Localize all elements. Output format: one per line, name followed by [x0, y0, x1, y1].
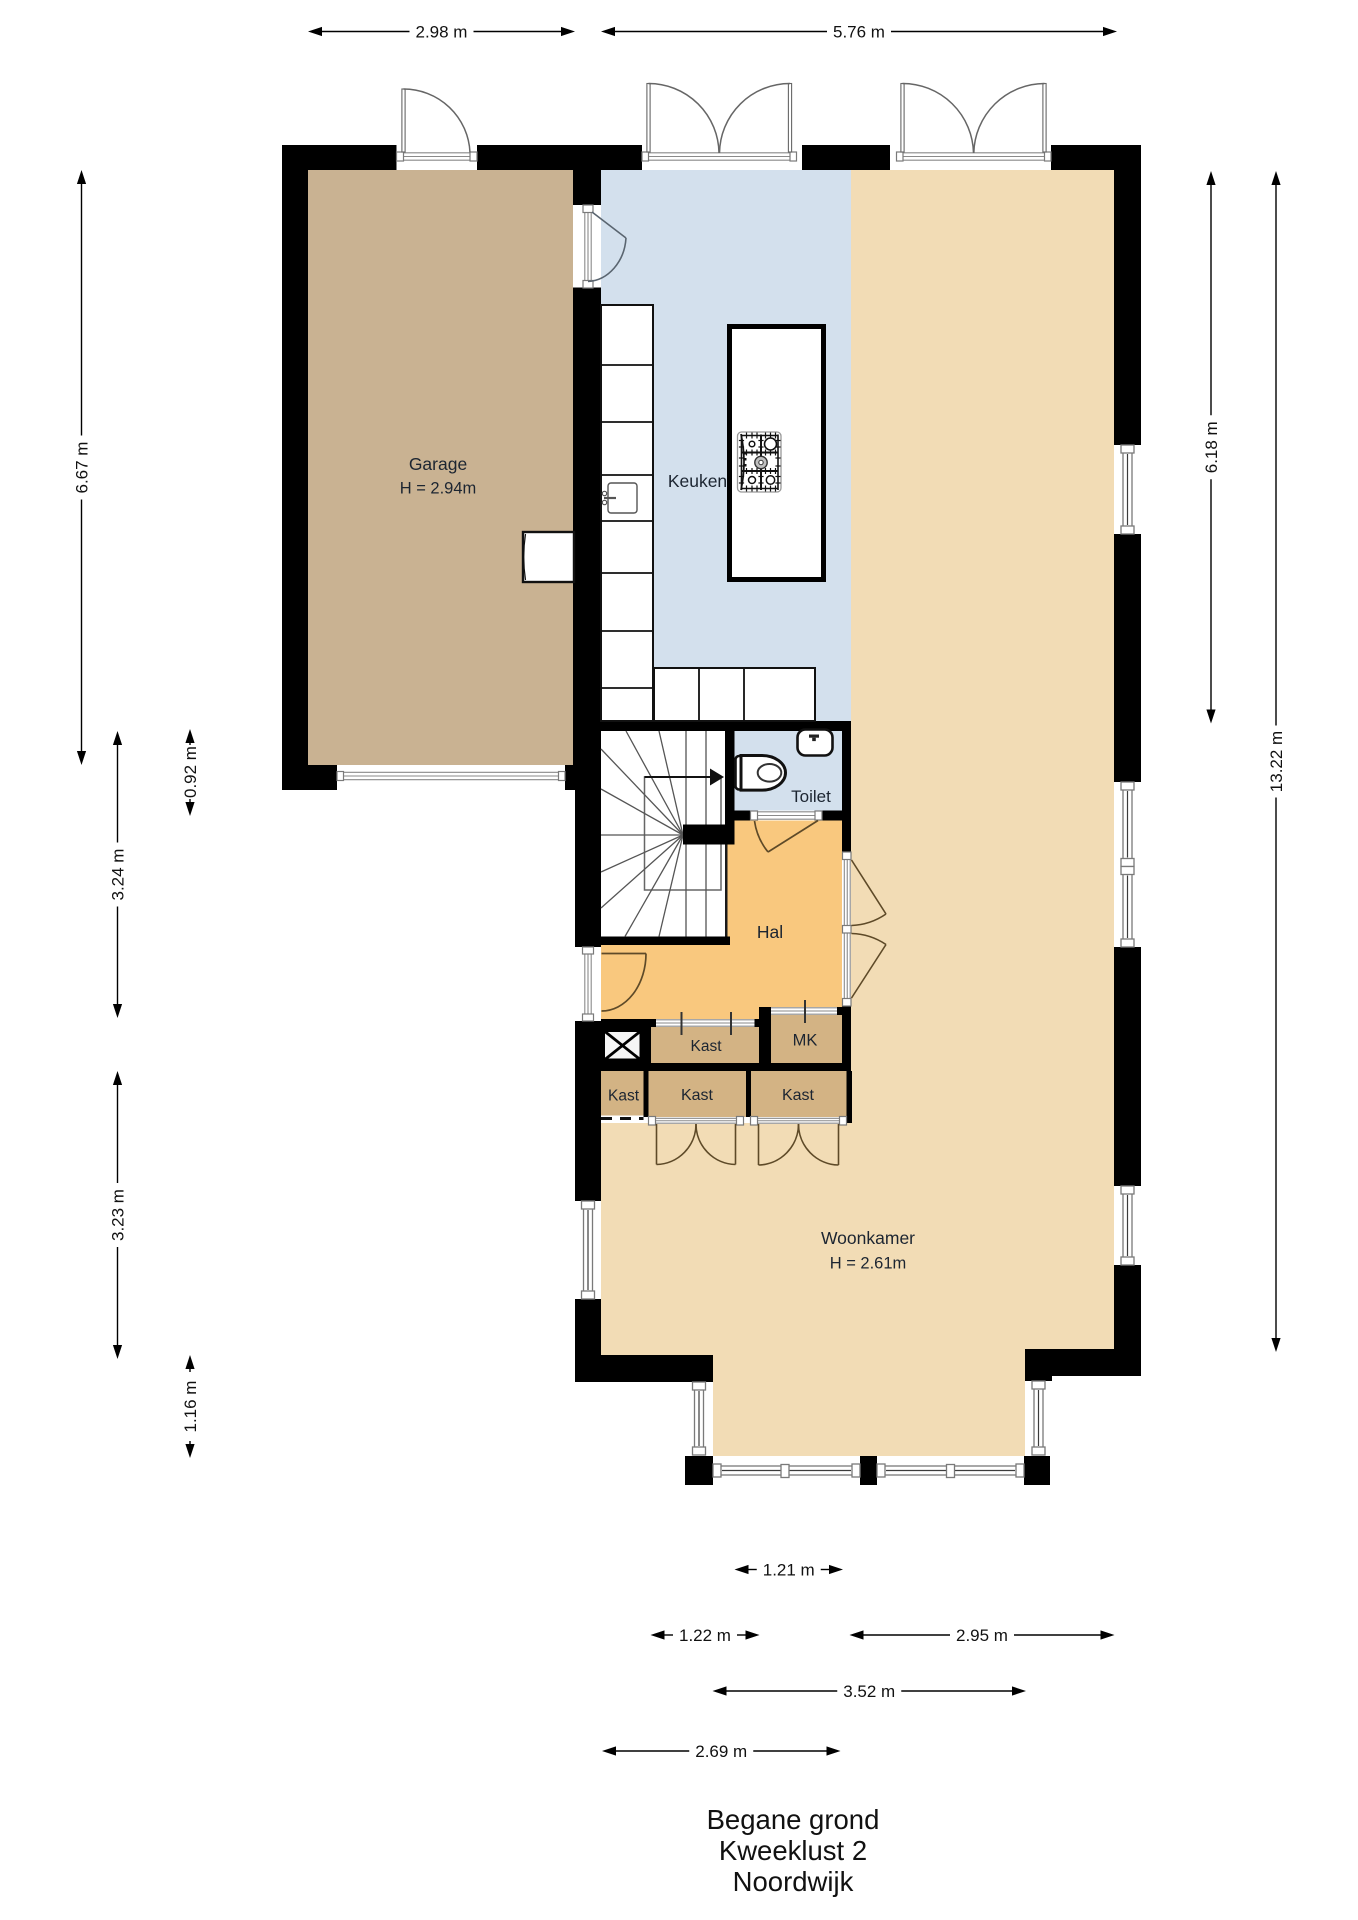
svg-text:Keuken: Keuken: [668, 471, 727, 491]
svg-text:Noordwijk: Noordwijk: [733, 1866, 854, 1897]
svg-text:2.69 m: 2.69 m: [695, 1742, 747, 1761]
svg-text:Garage: Garage: [409, 454, 467, 474]
svg-text:2.95 m: 2.95 m: [956, 1626, 1008, 1645]
svg-text:0.92 m: 0.92 m: [181, 746, 200, 798]
svg-text:Begane grond: Begane grond: [707, 1804, 880, 1835]
svg-text:H = 2.61m: H = 2.61m: [830, 1255, 907, 1273]
svg-text:6.18 m: 6.18 m: [1202, 421, 1221, 473]
svg-text:Kast: Kast: [681, 1087, 714, 1104]
svg-text:Kast: Kast: [690, 1038, 722, 1055]
svg-text:6.67 m: 6.67 m: [73, 442, 92, 494]
svg-text:2.98 m: 2.98 m: [416, 23, 468, 42]
svg-text:3.52 m: 3.52 m: [843, 1682, 895, 1701]
svg-text:3.23 m: 3.23 m: [109, 1189, 128, 1241]
svg-text:1.21 m: 1.21 m: [763, 1561, 815, 1580]
svg-text:MK: MK: [793, 1032, 818, 1050]
svg-text:1.22 m: 1.22 m: [679, 1626, 731, 1645]
svg-text:Kweeklust 2: Kweeklust 2: [719, 1835, 867, 1866]
svg-text:Toilet: Toilet: [791, 787, 831, 806]
svg-text:5.76 m: 5.76 m: [833, 23, 885, 42]
svg-text:1.16 m: 1.16 m: [181, 1381, 200, 1433]
svg-text:3.24 m: 3.24 m: [109, 849, 128, 901]
svg-text:H = 2.94m: H = 2.94m: [400, 480, 477, 498]
svg-text:Woonkamer: Woonkamer: [821, 1228, 915, 1248]
svg-text:Kast: Kast: [782, 1087, 815, 1104]
svg-text:Kast: Kast: [608, 1088, 640, 1105]
svg-text:Hal: Hal: [757, 922, 783, 942]
svg-text:13.22 m: 13.22 m: [1267, 731, 1286, 792]
